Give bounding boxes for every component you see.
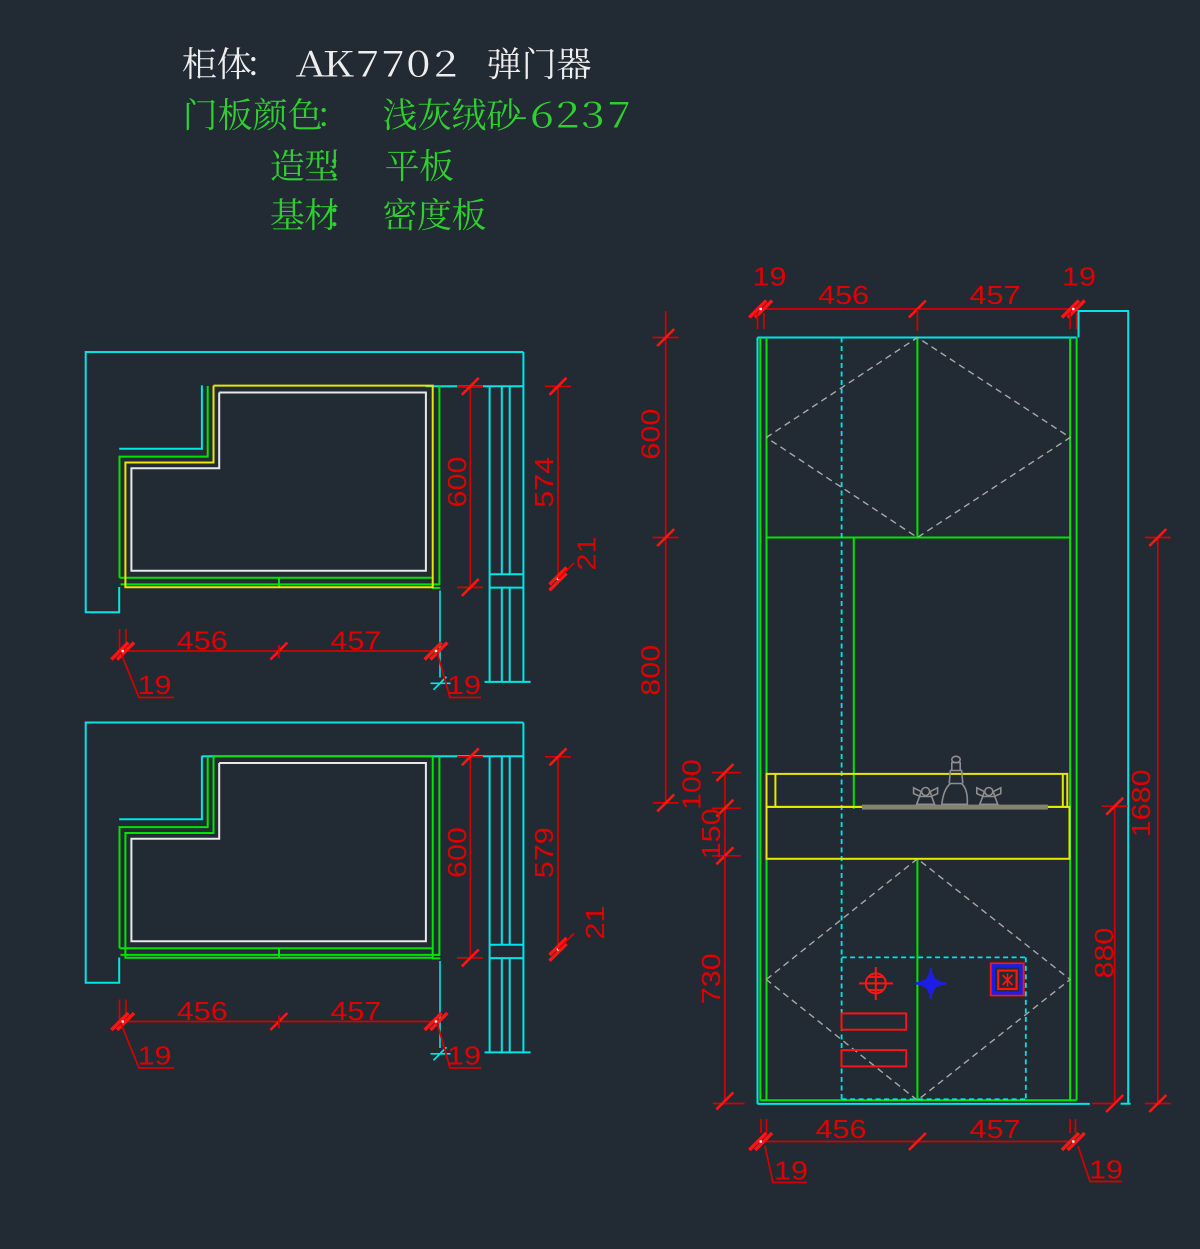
svg-text:800: 800	[636, 645, 666, 696]
svg-text:19: 19	[753, 262, 787, 292]
svg-text:457: 457	[970, 280, 1021, 310]
svg-text:456: 456	[177, 996, 228, 1026]
svg-text:100: 100	[677, 759, 707, 810]
svg-text:456: 456	[177, 625, 228, 655]
svg-text:600: 600	[636, 409, 666, 460]
svg-text:19: 19	[138, 1040, 172, 1070]
svg-text:19: 19	[447, 670, 481, 700]
svg-text:19: 19	[1089, 1154, 1123, 1184]
svg-text:1680: 1680	[1126, 769, 1156, 837]
svg-text:600: 600	[442, 827, 472, 878]
svg-text:456: 456	[818, 280, 869, 310]
svg-text:21: 21	[580, 906, 610, 940]
svg-text:600: 600	[442, 457, 472, 508]
svg-text:457: 457	[330, 625, 381, 655]
svg-text:150: 150	[696, 808, 726, 859]
svg-text:19: 19	[138, 670, 172, 700]
svg-text:880: 880	[1089, 928, 1119, 979]
svg-text:19: 19	[1062, 262, 1096, 292]
svg-text:457: 457	[970, 1114, 1021, 1144]
svg-text:19: 19	[447, 1040, 481, 1070]
svg-text:574: 574	[529, 457, 559, 508]
svg-text:579: 579	[529, 827, 559, 878]
svg-text:19: 19	[774, 1155, 808, 1185]
svg-text:456: 456	[816, 1114, 867, 1144]
svg-text:21: 21	[571, 537, 601, 571]
svg-text:457: 457	[330, 996, 381, 1026]
svg-text:730: 730	[696, 953, 726, 1004]
